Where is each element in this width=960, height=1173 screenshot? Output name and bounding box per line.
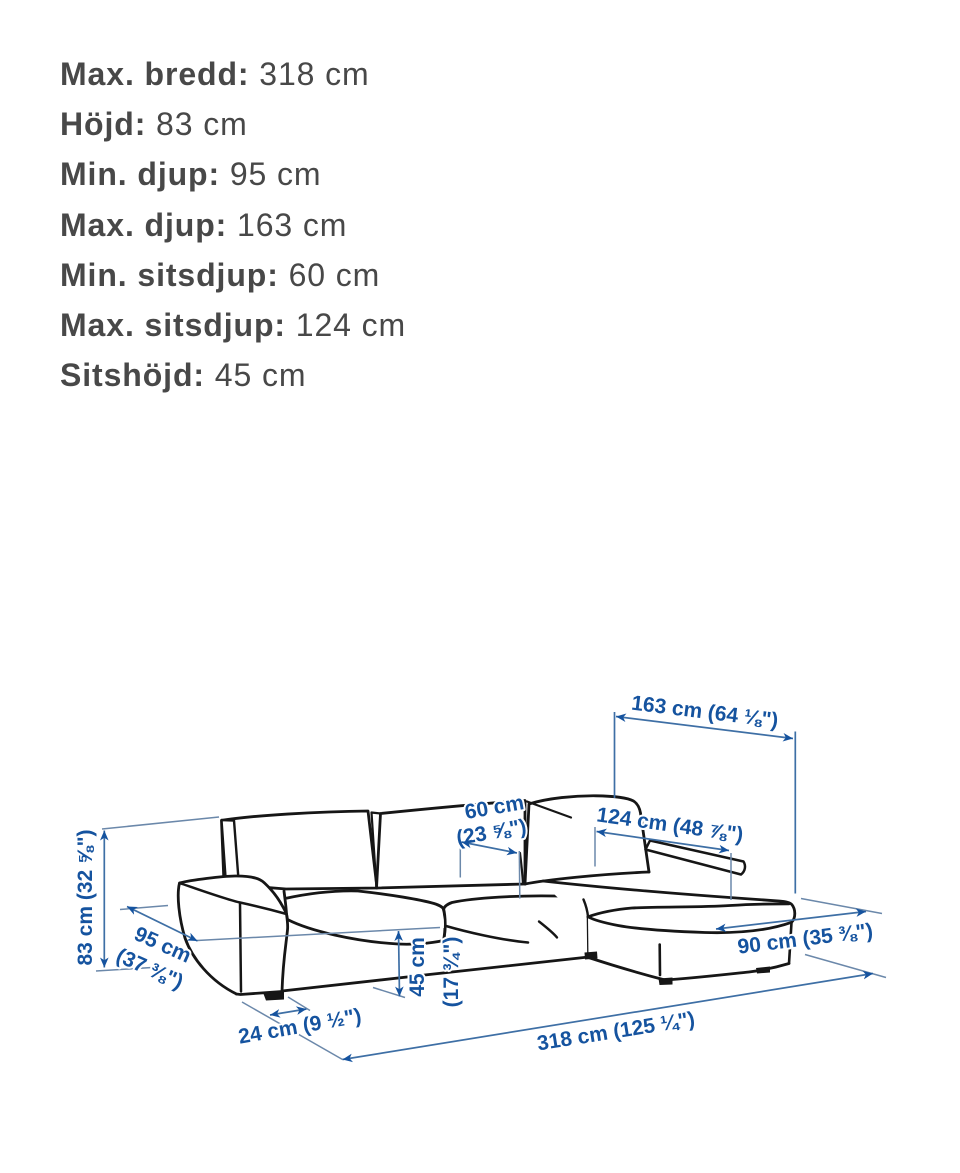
svg-text:(17 ¾"): (17 ¾") xyxy=(440,937,463,1008)
svg-text:83 cm (32 ⅝"): 83 cm (32 ⅝") xyxy=(74,829,97,965)
svg-text:163 cm (64 ⅛"): 163 cm (64 ⅛") xyxy=(630,692,779,733)
svg-text:45 cm: 45 cm xyxy=(406,937,429,997)
svg-text:24 cm (9 ½"): 24 cm (9 ½") xyxy=(237,1004,363,1048)
